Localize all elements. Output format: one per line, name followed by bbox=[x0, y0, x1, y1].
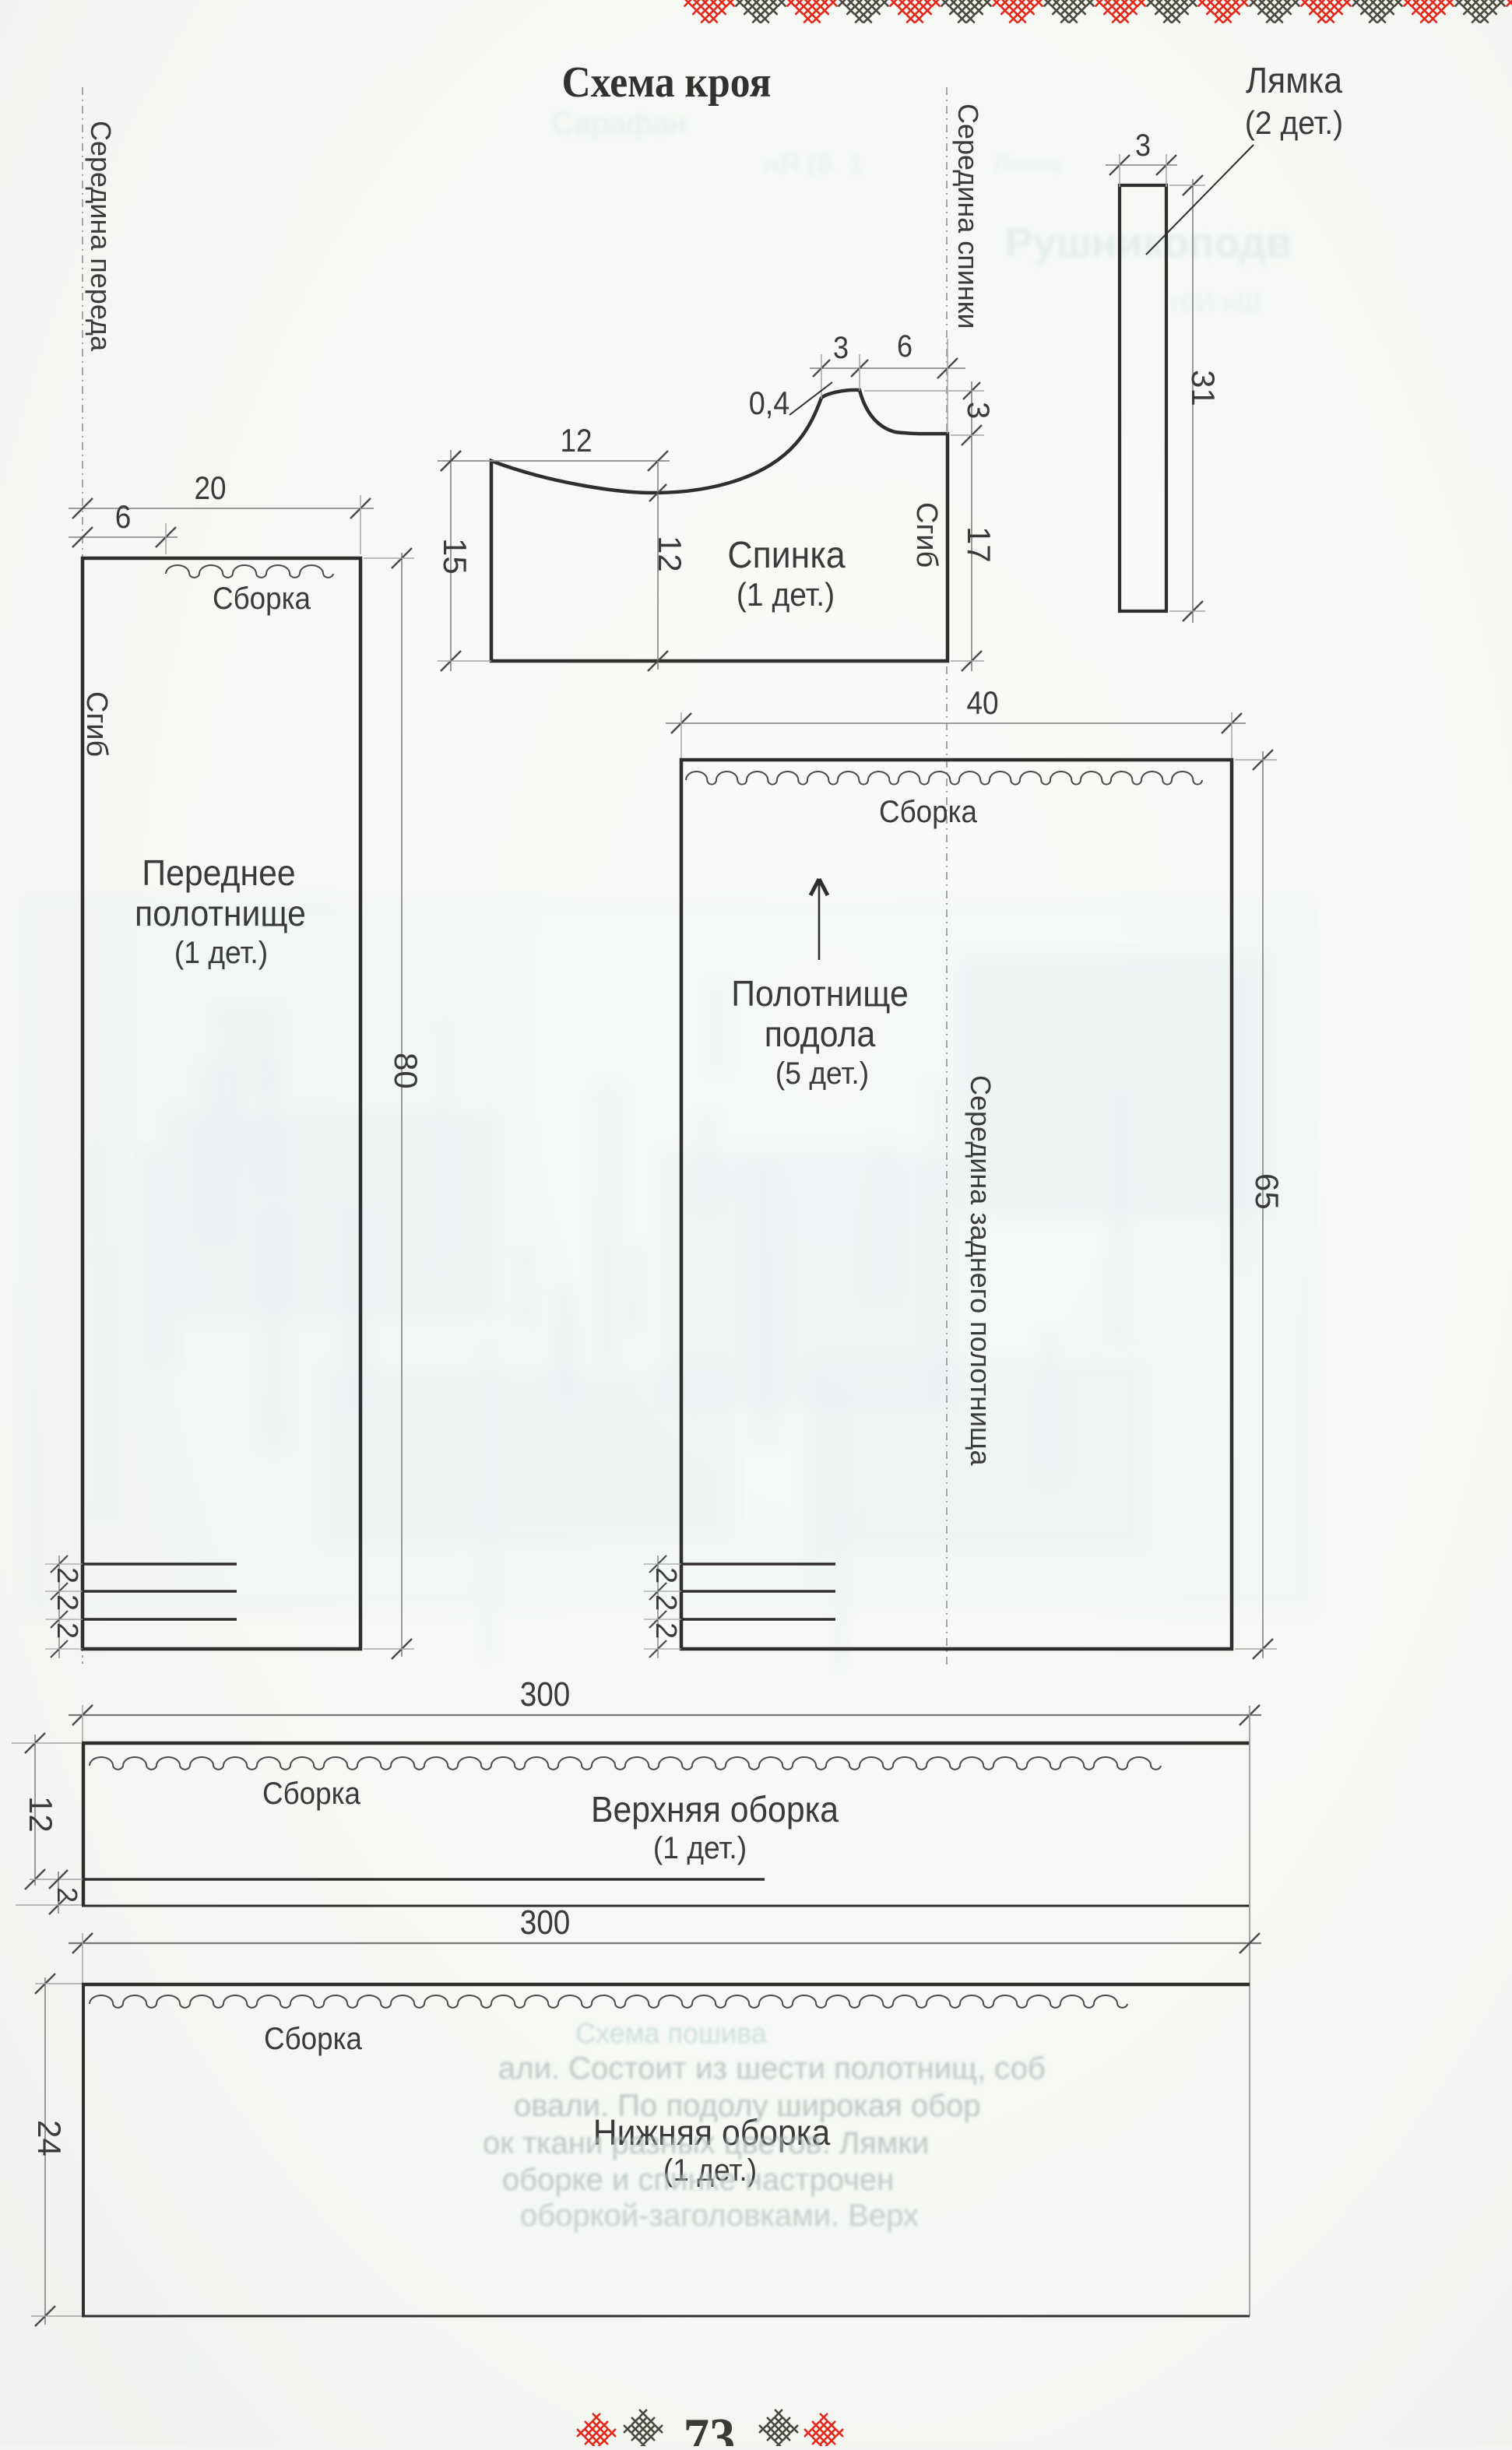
svg-text:80: 80 bbox=[388, 1053, 424, 1089]
svg-text:Лямка: Лямка bbox=[1246, 62, 1342, 101]
svg-text:2: 2 bbox=[51, 1887, 83, 1903]
svg-text:20: 20 bbox=[194, 470, 226, 507]
svg-text:Переднее: Переднее bbox=[142, 854, 295, 894]
svg-text:2: 2 bbox=[649, 1567, 682, 1584]
svg-text:12: 12 bbox=[560, 423, 592, 459]
svg-text:Середина спинки: Середина спинки bbox=[952, 104, 984, 329]
svg-text:3: 3 bbox=[833, 331, 849, 365]
svg-text:3: 3 bbox=[1135, 128, 1151, 163]
svg-text:2: 2 bbox=[51, 1567, 83, 1584]
svg-text:Лямка: Лямка bbox=[993, 151, 1061, 177]
svg-text:Полотнище: Полотнище bbox=[731, 975, 908, 1014]
svg-text:али. Состоит из шести полотнищ: али. Состоит из шести полотнищ, соб bbox=[498, 2051, 1046, 2086]
svg-text:3: 3 bbox=[961, 402, 995, 419]
svg-text:2: 2 bbox=[649, 1594, 682, 1611]
svg-text:(2 дет.): (2 дет.) bbox=[1245, 104, 1343, 142]
svg-text:0,4: 0,4 bbox=[749, 385, 790, 421]
svg-text:12: 12 bbox=[652, 536, 688, 572]
svg-text:тбИ нШ: тбИ нШ bbox=[1169, 288, 1261, 318]
svg-text:65: 65 bbox=[1249, 1173, 1285, 1210]
svg-text:Схема кроя: Схема кроя bbox=[562, 58, 772, 106]
svg-text:31: 31 bbox=[1185, 370, 1222, 406]
svg-text:Верхняя оборка: Верхняя оборка bbox=[591, 1791, 839, 1830]
svg-text:2: 2 bbox=[649, 1622, 682, 1639]
svg-text:Сборка: Сборка bbox=[879, 795, 978, 830]
svg-text:(1 дет.): (1 дет.) bbox=[653, 1831, 747, 1866]
svg-text:6: 6 bbox=[115, 499, 132, 536]
svg-text:15: 15 bbox=[437, 538, 473, 575]
svg-text:Середина заднего полотнища: Середина заднего полотнища bbox=[965, 1075, 997, 1467]
svg-text:17: 17 bbox=[961, 526, 997, 563]
svg-text:овали. По подолу широкая обор: овали. По подолу широкая обор bbox=[514, 2089, 980, 2123]
svg-text:(1 дет.): (1 дет.) bbox=[174, 936, 268, 971]
svg-text:Сборка: Сборка bbox=[262, 1777, 361, 1812]
svg-text:Сборка: Сборка bbox=[213, 582, 311, 617]
svg-text:полотнище: полотнище bbox=[135, 895, 306, 934]
svg-text:оборке и спинке настрочен: оборке и спинке настрочен bbox=[502, 2163, 894, 2197]
svg-text:Сгиб: Сгиб bbox=[80, 691, 113, 757]
svg-text:Сгиб: Сгиб bbox=[910, 502, 943, 568]
svg-text:12: 12 bbox=[23, 1796, 59, 1833]
svg-text:24: 24 bbox=[31, 2120, 68, 2156]
svg-text:300: 300 bbox=[520, 1903, 571, 1942]
svg-text:оборкой-заголовками. Верх: оборкой-заголовками. Верх bbox=[520, 2199, 919, 2233]
svg-text:Середина переда: Середина переда bbox=[85, 121, 117, 352]
svg-text:нЯ (8. 1: нЯ (8. 1 bbox=[764, 147, 863, 179]
svg-text:Сборка: Сборка bbox=[264, 2022, 363, 2057]
svg-text:300: 300 bbox=[520, 1675, 571, 1714]
svg-text:2: 2 bbox=[51, 1594, 83, 1611]
svg-text:2: 2 bbox=[51, 1622, 83, 1639]
svg-text:40: 40 bbox=[966, 685, 998, 722]
svg-text:6: 6 bbox=[897, 329, 912, 364]
svg-text:(5 дет.): (5 дет.) bbox=[775, 1056, 869, 1091]
svg-text:Спинка: Спинка bbox=[727, 534, 846, 576]
svg-text:73: 73 bbox=[684, 2406, 735, 2446]
svg-text:Схема пошива: Схема пошива bbox=[575, 2017, 768, 2049]
svg-text:подола: подола bbox=[765, 1015, 876, 1055]
svg-text:Сарафан: Сарафан bbox=[551, 107, 686, 141]
svg-text:Рушникоподв: Рушникоподв bbox=[1005, 220, 1292, 266]
svg-text:(1 дет.): (1 дет.) bbox=[737, 576, 835, 613]
svg-text:ок ткани разных цветов. Лямки: ок ткани разных цветов. Лямки bbox=[483, 2126, 929, 2160]
